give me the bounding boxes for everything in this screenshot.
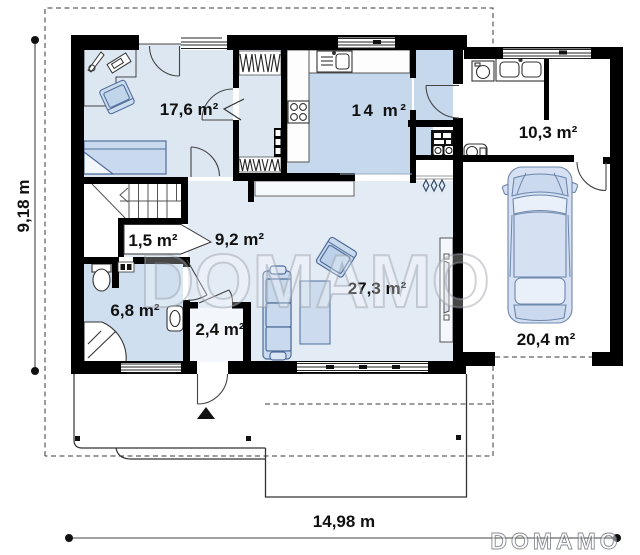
svg-text:17,6 m²: 17,6 m² <box>160 100 219 119</box>
svg-text:14,98 m: 14,98 m <box>313 512 375 531</box>
svg-text:9,18 m: 9,18 m <box>14 180 33 233</box>
svg-text:10,3 m²: 10,3 m² <box>519 123 578 142</box>
svg-text:20,4 m²: 20,4 m² <box>517 330 576 349</box>
svg-text:DOMAMO: DOMAMO <box>490 528 621 554</box>
svg-text:14 m²: 14 m² <box>352 101 409 120</box>
svg-text:DOMAMO: DOMAMO <box>140 239 490 323</box>
